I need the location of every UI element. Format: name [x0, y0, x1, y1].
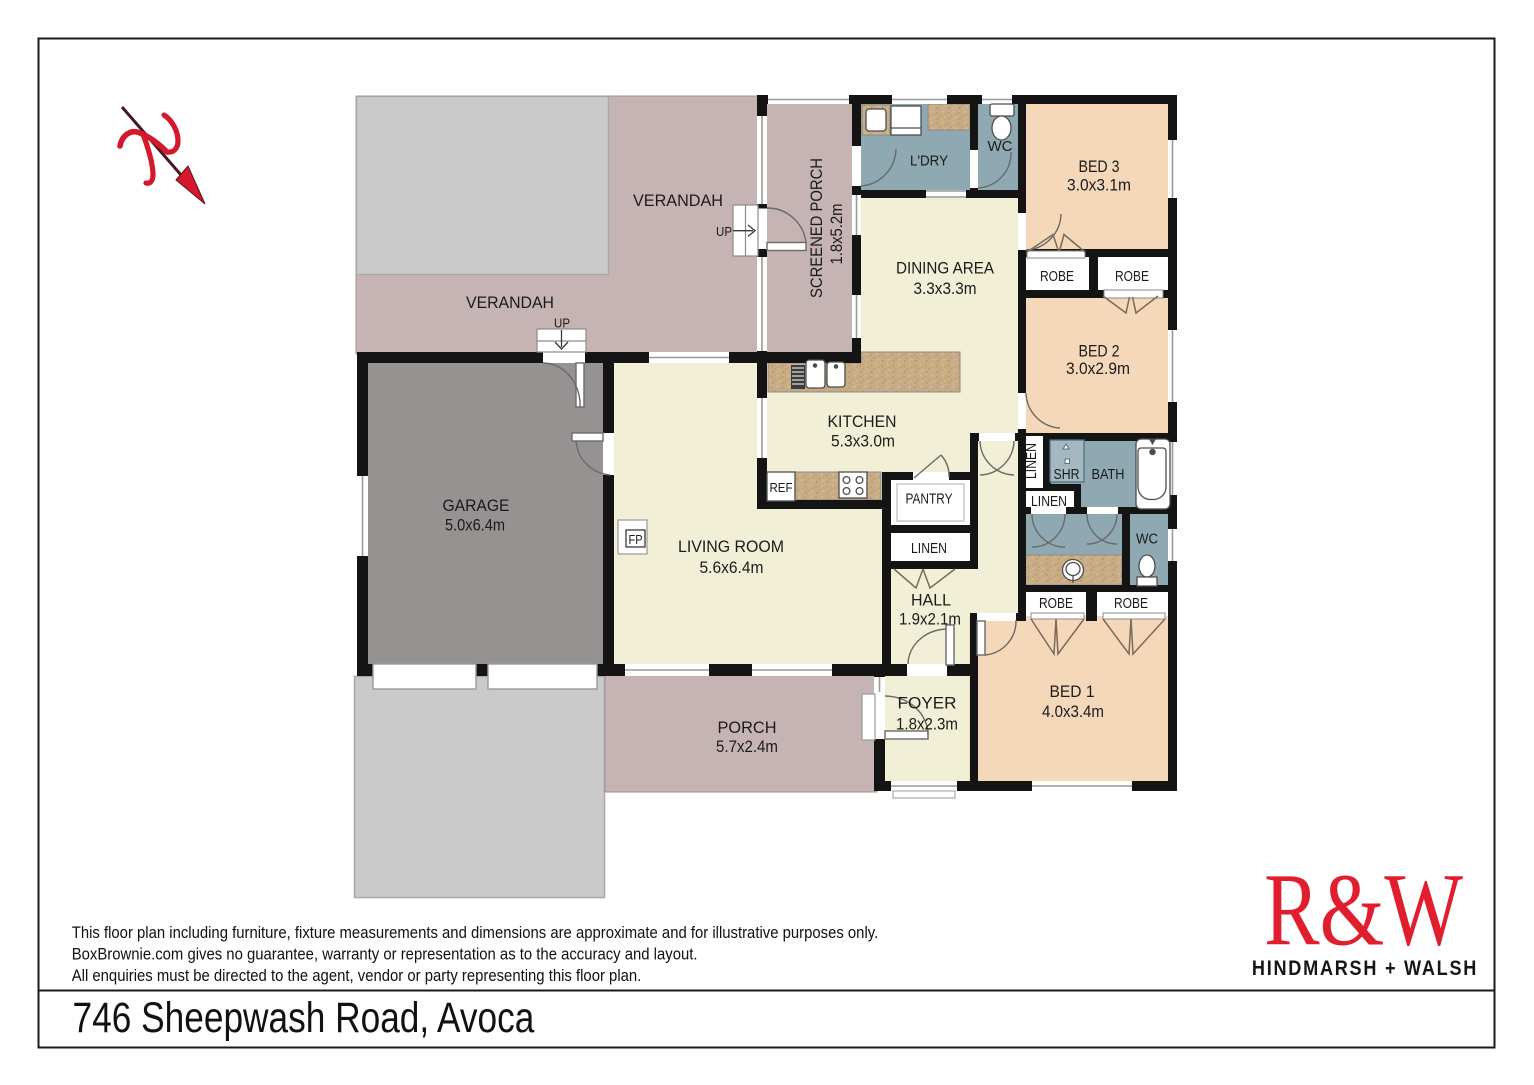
svg-text:UP: UP	[554, 317, 570, 331]
svg-text:SHR: SHR	[1054, 467, 1080, 483]
svg-text:FP: FP	[629, 533, 643, 547]
svg-text:1.8x2.3m: 1.8x2.3m	[896, 716, 958, 734]
svg-text:BoxBrownie.com gives no guaran: BoxBrownie.com gives no guarantee, warra…	[72, 946, 698, 964]
svg-text:GARAGE: GARAGE	[443, 497, 510, 515]
svg-text:LINEN: LINEN	[1031, 494, 1067, 510]
svg-text:3.3x3.3m: 3.3x3.3m	[914, 280, 977, 298]
svg-text:5.3x3.0m: 5.3x3.0m	[831, 433, 895, 451]
svg-text:1.9x2.1m: 1.9x2.1m	[899, 611, 961, 629]
svg-text:DINING AREA: DINING AREA	[896, 260, 994, 278]
svg-text:REF: REF	[770, 480, 793, 495]
svg-text:3.0x2.9m: 3.0x2.9m	[1066, 360, 1130, 378]
svg-text:5.7x2.4m: 5.7x2.4m	[716, 738, 778, 756]
svg-text:5.6x6.4m: 5.6x6.4m	[700, 559, 764, 577]
svg-text:HALL: HALL	[911, 592, 951, 610]
svg-text:This floor plan including furn: This floor plan including furniture, fix…	[72, 924, 878, 942]
svg-text:FOYER: FOYER	[898, 695, 957, 713]
svg-text:3.0x3.1m: 3.0x3.1m	[1067, 177, 1131, 195]
svg-text:L'DRY: L'DRY	[910, 154, 948, 170]
svg-text:1.8x5.2m: 1.8x5.2m	[828, 204, 846, 265]
svg-text:BED 3: BED 3	[1079, 158, 1120, 176]
svg-text:VERANDAH: VERANDAH	[633, 192, 723, 210]
svg-text:ROBE: ROBE	[1040, 269, 1074, 285]
svg-text:UP: UP	[716, 225, 732, 239]
svg-text:HINDMARSH + WALSH: HINDMARSH + WALSH	[1252, 957, 1478, 981]
svg-text:BED 1: BED 1	[1050, 683, 1095, 701]
svg-text:WC: WC	[1136, 532, 1158, 548]
svg-text:ROBE: ROBE	[1039, 596, 1073, 612]
svg-text:ROBE: ROBE	[1115, 269, 1149, 285]
svg-text:WC: WC	[988, 139, 1013, 155]
svg-text:LIVING ROOM: LIVING ROOM	[678, 538, 784, 556]
svg-text:PANTRY: PANTRY	[906, 491, 953, 508]
svg-text:All enquiries must be directed: All enquiries must be directed to the ag…	[72, 967, 642, 985]
svg-text:BATH: BATH	[1092, 467, 1125, 483]
svg-text:VERANDAH: VERANDAH	[466, 294, 554, 312]
svg-text:4.0x3.4m: 4.0x3.4m	[1042, 703, 1104, 721]
svg-text:LINEN: LINEN	[911, 541, 947, 557]
svg-text:KITCHEN: KITCHEN	[828, 413, 897, 431]
svg-text:SCREENED PORCH: SCREENED PORCH	[808, 158, 826, 298]
svg-text:5.0x6.4m: 5.0x6.4m	[445, 517, 505, 535]
svg-text:PORCH: PORCH	[718, 719, 777, 737]
svg-text:746 Sheepwash Road, Avoca: 746 Sheepwash Road, Avoca	[73, 994, 535, 1042]
svg-text:R&W: R&W	[1264, 853, 1463, 968]
svg-text:BED 2: BED 2	[1079, 343, 1120, 361]
svg-text:LINEN: LINEN	[1024, 443, 1040, 479]
svg-text:ROBE: ROBE	[1114, 596, 1148, 612]
